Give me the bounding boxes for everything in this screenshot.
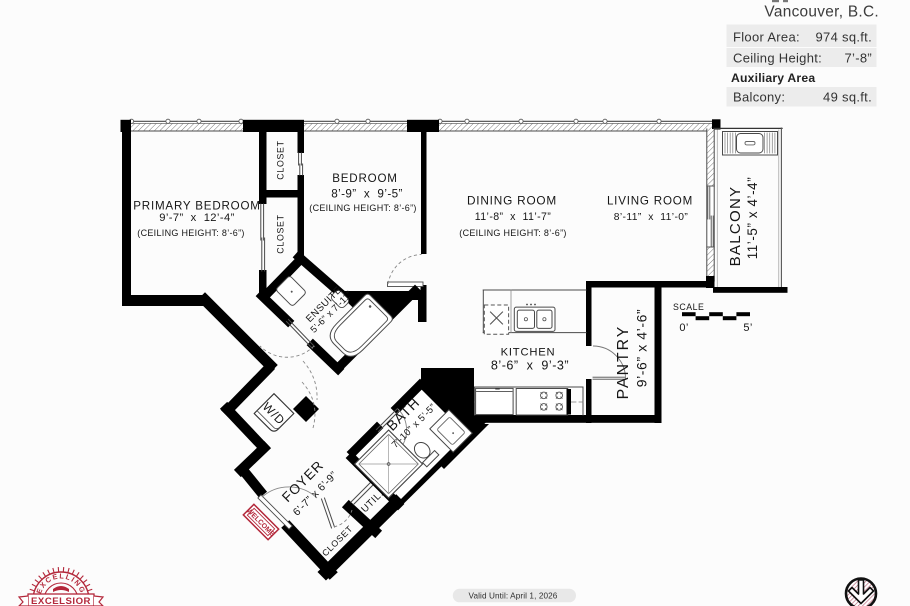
svg-text:7’-8”: 7’-8”	[844, 51, 872, 66]
svg-text:Balcony:: Balcony:	[733, 90, 785, 105]
svg-text:PANTRY: PANTRY	[615, 325, 632, 400]
svg-text:11’-5” x 4’-4”: 11’-5” x 4’-4”	[745, 177, 760, 260]
svg-text:EXCELSIOR: EXCELSIOR	[31, 596, 91, 606]
svg-text:DINING ROOM: DINING ROOM	[467, 194, 557, 208]
svg-text:49 sq.ft.: 49 sq.ft.	[823, 90, 872, 105]
svg-text:974 sq.ft.: 974 sq.ft.	[816, 30, 872, 45]
svg-text:KITCHEN: KITCHEN	[501, 347, 556, 359]
svg-text:BALCONY: BALCONY	[727, 186, 744, 267]
svg-text:Floor Area:: Floor Area:	[733, 30, 800, 45]
svg-text:LIVING ROOM: LIVING ROOM	[607, 195, 693, 208]
svg-text:5’: 5’	[743, 322, 752, 334]
svg-text:8’-6” x 9’-3”: 8’-6” x 9’-3”	[491, 359, 569, 373]
svg-text:(CEILING HEIGHT: 8’-6”): (CEILING HEIGHT: 8’-6”)	[137, 228, 244, 238]
svg-text:BEDROOM: BEDROOM	[332, 172, 398, 185]
svg-text:8’-9” x 9’-5”: 8’-9” x 9’-5”	[331, 188, 403, 201]
svg-text:PRIMARY BEDROOM: PRIMARY BEDROOM	[133, 200, 261, 213]
svg-text:(CEILING HEIGHT: 8’-6”): (CEILING HEIGHT: 8’-6”)	[309, 203, 416, 213]
svg-text:0’: 0’	[679, 322, 688, 334]
svg-text:SCALE: SCALE	[673, 302, 704, 312]
svg-text:11’-8” x 11’-7”: 11’-8” x 11’-7”	[475, 211, 552, 223]
svg-text:CLOSET: CLOSET	[276, 140, 286, 179]
svg-text:Valid Until: April 1, 2026: Valid Until: April 1, 2026	[469, 592, 558, 601]
svg-text:Vancouver, B.C.: Vancouver, B.C.	[764, 4, 879, 21]
svg-text:9’-6” x 4’-6”: 9’-6” x 4’-6”	[634, 309, 650, 388]
svg-text:9’-7” x 12’-4”: 9’-7” x 12’-4”	[159, 212, 234, 224]
svg-text:(CEILING HEIGHT: 8’-6”): (CEILING HEIGHT: 8’-6”)	[459, 228, 566, 238]
svg-text:8’-11” x 11’-0”: 8’-11” x 11’-0”	[614, 212, 689, 223]
svg-text:Ceiling Height:: Ceiling Height:	[733, 51, 822, 66]
svg-text:CLOSET: CLOSET	[276, 214, 286, 253]
svg-text:Auxiliary Area: Auxiliary Area	[731, 71, 815, 85]
